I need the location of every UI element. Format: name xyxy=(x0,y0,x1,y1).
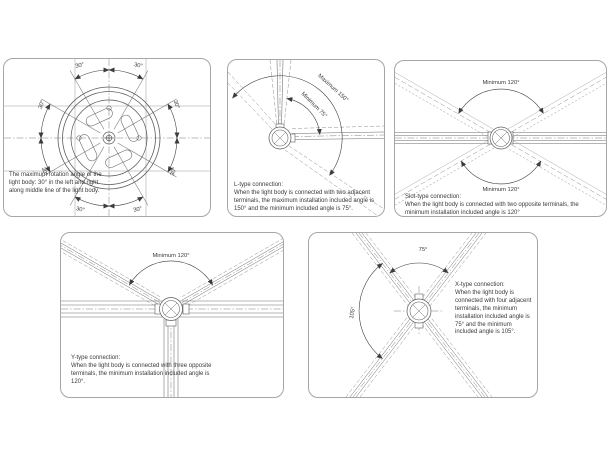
center-hub xyxy=(103,132,115,144)
connector-hub xyxy=(407,294,431,328)
y-type-note: Y-type connection: When the light body i… xyxy=(71,355,223,387)
slot-type-body: When the light body is connected with tw… xyxy=(405,202,601,217)
included-angle-arcs xyxy=(233,76,343,176)
arc-labels: Minimum 120° xyxy=(152,253,189,259)
max-angle-label: Maximum 150° xyxy=(316,73,349,103)
slot-type-diagram: Minimum 120° Minimum 120° xyxy=(395,61,606,216)
min-angle-label-top: Minimum 120° xyxy=(482,80,519,86)
panel-slot-type: Minimum 120° Minimum 120° Slot-type conn… xyxy=(394,60,607,217)
l-type-title: L-type connection: xyxy=(234,182,380,190)
panel-y-type: Minimum 120° Y-type connection: When the… xyxy=(60,232,284,398)
l-type-note: L-type connection: When the light body i… xyxy=(234,182,380,214)
slot-type-title: Slot-type connection: xyxy=(405,194,601,202)
min-angle-label: Minimum 75° xyxy=(300,91,328,119)
top-angle-label: 75° xyxy=(419,247,428,253)
connector-hub xyxy=(488,127,513,149)
arc-labels: Maximum 150° Minimum 75° xyxy=(300,73,349,119)
panel-rotation-limits: 30° 30° 30° 30° 30° 30° 30° 30° The maxi… xyxy=(3,58,211,217)
y-type-title: Y-type connection: xyxy=(71,355,223,363)
rotation-note: The maximum rotation angle of the light … xyxy=(9,172,106,196)
angle-label-bottom-left: 30° xyxy=(75,206,85,214)
included-angle-arc xyxy=(129,261,212,285)
angle-label-top-right: 30° xyxy=(133,62,143,70)
min-angle-label: Minimum 120° xyxy=(152,253,189,259)
x-type-body: When the light body is connected with fo… xyxy=(455,290,535,337)
angle-label-top-left: 30° xyxy=(75,62,85,70)
slot-type-note: Slot-type connection: When the light bod… xyxy=(405,194,601,217)
min-angle-label-bottom: Minimum 120° xyxy=(482,187,519,193)
left-angle-label: 105° xyxy=(349,306,357,319)
x-type-note: X-type connection: When the light body i… xyxy=(455,282,535,337)
installation-angle-diagram-sheet: 30° 30° 30° 30° 30° 30° 30° 30° The maxi… xyxy=(0,0,610,450)
angle-label-bottom-right: 30° xyxy=(133,206,143,214)
y-type-body: When the light body is connected with th… xyxy=(71,363,223,387)
panel-l-type: Maximum 150° Minimum 75° L-type connecti… xyxy=(227,59,385,217)
connector-hub xyxy=(269,124,295,149)
angle-label-right-upper: 30° xyxy=(172,100,181,110)
center-lines xyxy=(280,60,384,137)
x-type-title: X-type connection: xyxy=(455,282,535,290)
panel-x-type: 75° 105° X-type connection: When the lig… xyxy=(308,232,538,398)
angle-label-right-lower: 30° xyxy=(170,167,179,177)
l-type-body: When the light body is connected with tw… xyxy=(234,190,380,214)
